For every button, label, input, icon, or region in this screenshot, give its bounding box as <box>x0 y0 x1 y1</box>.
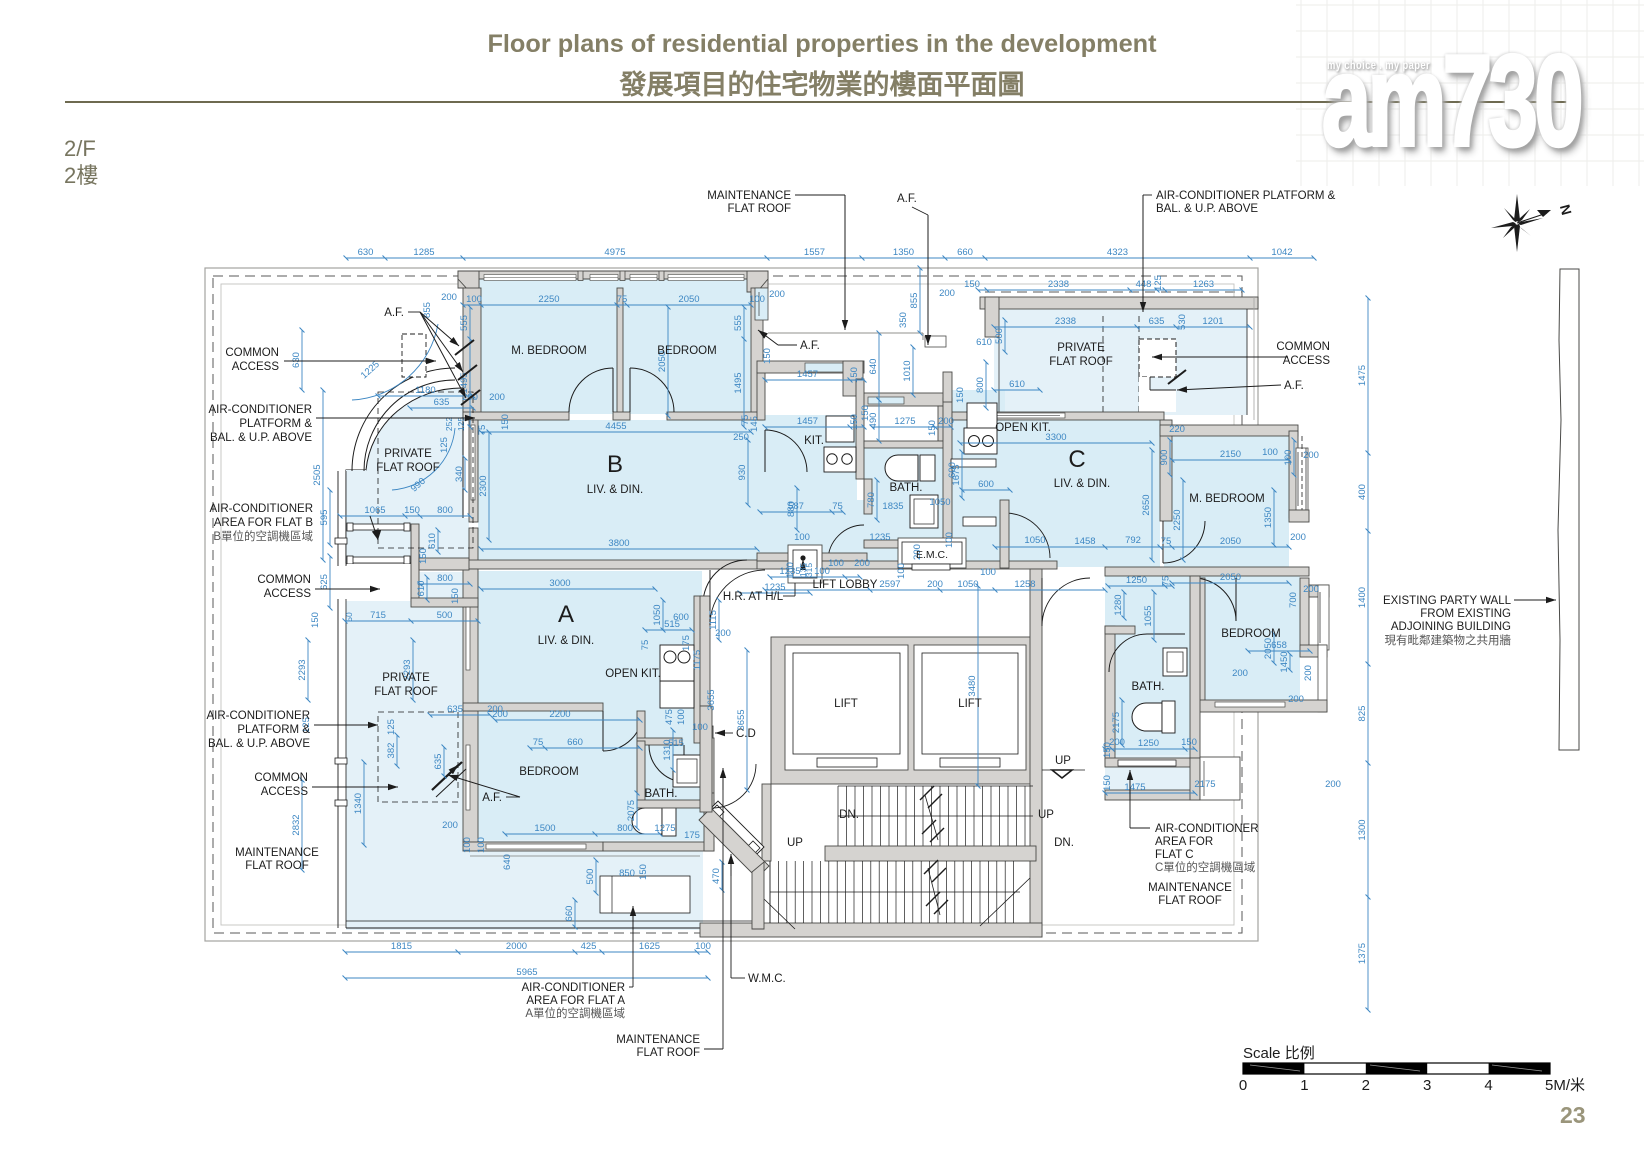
svg-text:75: 75 <box>1161 536 1172 547</box>
svg-text:792: 792 <box>1125 535 1141 546</box>
svg-text:100: 100 <box>828 558 844 569</box>
svg-text:FLAT ROOF: FLAT ROOF <box>728 203 791 215</box>
svg-text:930: 930 <box>737 465 748 481</box>
svg-text:E.M.C.: E.M.C. <box>916 549 948 561</box>
svg-text:FLAT ROOF: FLAT ROOF <box>245 860 308 872</box>
svg-text:150: 150 <box>638 864 649 880</box>
svg-text:200: 200 <box>1232 668 1248 679</box>
svg-text:100: 100 <box>785 562 796 578</box>
svg-text:200: 200 <box>441 292 457 303</box>
svg-text:150: 150 <box>964 279 980 290</box>
svg-text:2832: 2832 <box>291 814 302 835</box>
svg-text:PRIVATE: PRIVATE <box>1057 342 1105 354</box>
svg-text:BATH.: BATH. <box>1131 681 1164 693</box>
svg-text:1235: 1235 <box>869 532 890 543</box>
svg-text:150: 150 <box>450 588 461 604</box>
svg-text:2650: 2650 <box>1141 494 1152 515</box>
svg-text:200: 200 <box>1325 779 1341 790</box>
svg-text:1042: 1042 <box>1271 247 1292 258</box>
svg-text:555: 555 <box>459 315 470 331</box>
svg-text:1250: 1250 <box>1126 575 1147 586</box>
svg-text:C單位的空調機區域: C單位的空調機區域 <box>1155 860 1256 874</box>
svg-text:660: 660 <box>564 906 575 922</box>
svg-text:COMMON: COMMON <box>225 347 279 359</box>
svg-text:4: 4 <box>1484 1077 1492 1094</box>
svg-text:610: 610 <box>1009 379 1025 390</box>
svg-text:2000: 2000 <box>506 941 527 952</box>
svg-text:ACCESS: ACCESS <box>232 361 280 373</box>
svg-text:825: 825 <box>1357 706 1368 722</box>
svg-text:1275: 1275 <box>654 823 675 834</box>
svg-text:A.F.: A.F. <box>384 307 404 319</box>
svg-text:1835: 1835 <box>882 501 903 512</box>
svg-text:610: 610 <box>416 581 427 597</box>
svg-text:FLAT ROOF: FLAT ROOF <box>637 1047 700 1059</box>
svg-text:635: 635 <box>434 397 450 408</box>
svg-text:M. BEDROOM: M. BEDROOM <box>511 345 586 357</box>
svg-text:150: 150 <box>762 348 773 364</box>
svg-text:1300: 1300 <box>1357 819 1368 840</box>
svg-text:1400: 1400 <box>1357 587 1368 608</box>
svg-text:855: 855 <box>909 293 920 309</box>
svg-text:PRIVATE: PRIVATE <box>384 448 432 460</box>
svg-text:800: 800 <box>437 573 453 584</box>
svg-text:50: 50 <box>344 612 354 622</box>
svg-text:150: 150 <box>418 548 429 564</box>
svg-text:3655: 3655 <box>736 709 747 730</box>
svg-text:350: 350 <box>898 312 909 328</box>
svg-text:A.F.: A.F. <box>800 340 820 352</box>
svg-text:ACCESS: ACCESS <box>261 786 309 798</box>
svg-text:LIV. & DIN.: LIV. & DIN. <box>587 484 643 496</box>
svg-text:200: 200 <box>1288 694 1304 705</box>
svg-text:200: 200 <box>1303 450 1319 461</box>
svg-text:658: 658 <box>1271 640 1287 651</box>
svg-text:LIFT: LIFT <box>958 698 982 710</box>
svg-text:FLAT ROOF: FLAT ROOF <box>374 686 437 698</box>
svg-text:150: 150 <box>955 387 966 403</box>
svg-text:AREA FOR FLAT A: AREA FOR FLAT A <box>526 995 625 1007</box>
svg-text:382: 382 <box>386 743 397 759</box>
svg-text:COMMON: COMMON <box>257 574 311 586</box>
svg-text:1263: 1263 <box>1193 279 1214 290</box>
svg-text:610: 610 <box>976 337 992 348</box>
svg-text:2250: 2250 <box>538 294 559 305</box>
svg-text:1050: 1050 <box>929 497 950 508</box>
svg-text:200: 200 <box>927 579 943 590</box>
svg-text:660: 660 <box>957 247 973 258</box>
svg-text:200: 200 <box>487 704 503 715</box>
svg-text:1475: 1475 <box>1357 365 1368 386</box>
svg-text:1175: 1175 <box>692 650 703 670</box>
svg-text:150: 150 <box>404 505 420 516</box>
svg-text:2338: 2338 <box>1048 279 1069 290</box>
svg-text:1050: 1050 <box>957 579 978 590</box>
svg-text:AIR-CONDITIONER: AIR-CONDITIONER <box>207 710 311 722</box>
svg-text:1457: 1457 <box>797 369 818 380</box>
svg-text:3000: 3000 <box>549 578 570 589</box>
svg-text:MAINTENANCE: MAINTENANCE <box>1148 882 1232 894</box>
svg-text:1180: 1180 <box>415 385 435 396</box>
svg-text:ADJOINING BUILDING: ADJOINING BUILDING <box>1391 621 1511 633</box>
svg-text:COMMON: COMMON <box>1276 341 1330 353</box>
svg-text:1258: 1258 <box>1014 579 1035 590</box>
svg-text:1285: 1285 <box>413 247 434 258</box>
svg-text:UP: UP <box>787 837 803 849</box>
svg-text:500: 500 <box>437 610 453 621</box>
svg-text:1450: 1450 <box>1279 651 1290 672</box>
svg-text:ACCESS: ACCESS <box>1283 355 1331 367</box>
svg-text:625: 625 <box>319 574 330 590</box>
svg-text:1495: 1495 <box>733 372 744 393</box>
svg-text:2: 2 <box>1362 1077 1370 1094</box>
svg-text:C: C <box>1068 446 1085 473</box>
svg-text:100: 100 <box>1262 447 1278 458</box>
svg-text:1275: 1275 <box>894 416 915 427</box>
svg-text:340: 340 <box>454 466 465 482</box>
svg-text:1475: 1475 <box>1124 782 1145 793</box>
svg-text:2075: 2075 <box>626 800 637 821</box>
svg-text:UP: UP <box>1038 809 1054 821</box>
svg-text:BAL. & U.P. ABOVE: BAL. & U.P. ABOVE <box>1156 203 1258 215</box>
svg-text:635: 635 <box>433 754 444 770</box>
svg-text:A.F.: A.F. <box>482 792 502 804</box>
svg-text:2597: 2597 <box>879 579 900 590</box>
svg-text:555: 555 <box>733 315 744 331</box>
svg-text:125: 125 <box>386 719 397 735</box>
svg-text:200: 200 <box>715 628 731 639</box>
svg-text:100: 100 <box>476 837 487 853</box>
svg-text:125: 125 <box>1153 275 1164 291</box>
svg-text:1055: 1055 <box>1143 605 1154 626</box>
svg-text:BATH.: BATH. <box>889 482 922 494</box>
svg-text:635: 635 <box>447 704 463 715</box>
svg-text:5965: 5965 <box>516 967 537 978</box>
svg-text:OPEN KIT.: OPEN KIT. <box>605 668 661 680</box>
svg-text:200: 200 <box>854 558 870 569</box>
svg-text:150: 150 <box>500 414 511 430</box>
svg-text:75: 75 <box>477 425 488 436</box>
svg-text:150: 150 <box>860 405 871 421</box>
svg-text:EXISTING PARTY WALL: EXISTING PARTY WALL <box>1383 595 1512 607</box>
svg-text:1457: 1457 <box>797 416 818 427</box>
svg-text:630: 630 <box>358 247 374 258</box>
svg-text:1350: 1350 <box>1263 507 1274 528</box>
svg-text:1340: 1340 <box>353 793 364 814</box>
svg-text:LIFT LOBBY: LIFT LOBBY <box>813 579 878 591</box>
svg-text:75: 75 <box>533 737 544 748</box>
svg-text:UP: UP <box>1055 755 1071 767</box>
svg-text:DN.: DN. <box>839 809 859 821</box>
svg-text:610: 610 <box>427 533 438 549</box>
svg-text:3655: 3655 <box>706 689 717 710</box>
svg-text:75: 75 <box>640 640 651 651</box>
svg-text:AIR-CONDITIONER: AIR-CONDITIONER <box>522 982 626 994</box>
svg-text:1065: 1065 <box>364 505 385 516</box>
svg-text:FLAT ROOF: FLAT ROOF <box>1158 895 1221 907</box>
svg-text:4975: 4975 <box>604 247 625 258</box>
svg-text:630: 630 <box>291 352 302 368</box>
svg-text:MAINTENANCE: MAINTENANCE <box>235 847 319 859</box>
svg-text:B: B <box>607 451 623 478</box>
svg-text:200: 200 <box>1303 665 1314 681</box>
svg-text:500: 500 <box>994 328 1005 344</box>
svg-text:3800: 3800 <box>608 538 629 549</box>
svg-text:150: 150 <box>849 367 860 383</box>
svg-text:2250: 2250 <box>1172 509 1183 530</box>
svg-text:4323: 4323 <box>1107 247 1128 258</box>
svg-text:AREA FOR FLAT B: AREA FOR FLAT B <box>214 517 314 529</box>
svg-text:100: 100 <box>896 563 907 579</box>
svg-text:2175: 2175 <box>1111 712 1122 733</box>
svg-text:1050: 1050 <box>1024 535 1045 546</box>
svg-text:1557: 1557 <box>804 247 825 258</box>
svg-text:BEDROOM: BEDROOM <box>1221 628 1280 640</box>
svg-text:OPEN KIT.: OPEN KIT. <box>995 422 1051 434</box>
svg-text:0: 0 <box>1239 1077 1247 1094</box>
svg-text:800: 800 <box>975 377 986 393</box>
svg-text:200: 200 <box>939 288 955 299</box>
svg-text:200: 200 <box>1109 737 1125 748</box>
svg-text:425: 425 <box>581 941 597 952</box>
svg-text:100: 100 <box>692 722 708 733</box>
svg-text:KIT.: KIT. <box>804 435 824 447</box>
svg-text:75: 75 <box>832 501 843 512</box>
svg-text:150: 150 <box>927 420 938 436</box>
svg-text:100: 100 <box>980 567 996 578</box>
svg-text:75: 75 <box>740 415 751 426</box>
svg-text:2050: 2050 <box>678 294 699 305</box>
svg-text:LIFT: LIFT <box>834 698 858 710</box>
svg-text:200: 200 <box>1290 532 1306 543</box>
svg-text:BATH.: BATH. <box>644 788 677 800</box>
svg-text:125: 125 <box>439 437 450 453</box>
svg-text:600: 600 <box>947 462 958 478</box>
svg-text:475: 475 <box>664 709 675 725</box>
svg-text:200: 200 <box>1303 584 1319 595</box>
svg-text:Scale 比例: Scale 比例 <box>1243 1045 1315 1062</box>
svg-text:100: 100 <box>1283 450 1294 466</box>
svg-text:1350: 1350 <box>893 247 914 258</box>
svg-text:PRIVATE: PRIVATE <box>382 672 430 684</box>
svg-text:B單位的空調機區域: B單位的空調機區域 <box>213 529 313 543</box>
svg-text:100: 100 <box>695 941 711 952</box>
svg-text:2150: 2150 <box>1220 449 1241 460</box>
svg-text:715: 715 <box>370 610 386 621</box>
svg-text:100: 100 <box>794 532 810 543</box>
svg-text:A: A <box>558 601 574 628</box>
svg-text:175: 175 <box>684 830 700 841</box>
svg-text:A.F.: A.F. <box>897 193 917 205</box>
svg-text:850: 850 <box>619 868 635 879</box>
svg-text:800: 800 <box>617 823 633 834</box>
svg-text:BEDROOM: BEDROOM <box>519 766 578 778</box>
svg-text:800: 800 <box>437 505 453 516</box>
svg-text:AIR-CONDITIONER: AIR-CONDITIONER <box>210 503 314 515</box>
svg-text:400: 400 <box>1357 484 1368 500</box>
svg-text:1500: 1500 <box>534 823 555 834</box>
svg-text:2200: 2200 <box>549 709 570 720</box>
svg-text:FLAT ROOF: FLAT ROOF <box>1049 356 1112 368</box>
svg-text:2050: 2050 <box>1220 572 1241 583</box>
svg-text:M. BEDROOM: M. BEDROOM <box>1189 493 1264 505</box>
svg-text:600: 600 <box>978 479 994 490</box>
svg-text:1375: 1375 <box>1357 943 1368 964</box>
svg-text:200: 200 <box>489 392 505 403</box>
svg-text:4455: 4455 <box>605 421 626 432</box>
svg-text:BAL. & U.P. ABOVE: BAL. & U.P. ABOVE <box>210 432 312 444</box>
svg-text:3480: 3480 <box>967 675 978 696</box>
svg-text:W.M.C.: W.M.C. <box>748 973 786 985</box>
svg-text:3: 3 <box>1423 1077 1431 1094</box>
svg-text:900: 900 <box>1159 450 1170 466</box>
svg-text:AIR-CONDITIONER: AIR-CONDITIONER <box>1155 823 1259 835</box>
svg-text:100: 100 <box>466 294 482 305</box>
svg-text:1225: 1225 <box>359 359 382 381</box>
svg-text:LIV. & DIN.: LIV. & DIN. <box>538 635 594 647</box>
svg-text:2338: 2338 <box>1055 316 1076 327</box>
svg-text:A單位的空調機區域: A單位的空調機區域 <box>525 1006 625 1020</box>
svg-text:640: 640 <box>868 359 879 375</box>
svg-text:100: 100 <box>676 709 687 725</box>
svg-text:175: 175 <box>681 635 692 651</box>
svg-text:252: 252 <box>444 417 454 431</box>
svg-text:N: N <box>1557 203 1575 217</box>
svg-text:2505: 2505 <box>312 464 323 485</box>
svg-text:PLATFORM &: PLATFORM & <box>239 418 312 430</box>
svg-text:1: 1 <box>1300 1077 1308 1094</box>
svg-text:1201: 1201 <box>1202 316 1223 327</box>
svg-text:100: 100 <box>462 837 473 853</box>
svg-text:FLAT ROOF: FLAT ROOF <box>376 462 439 474</box>
svg-text:AIR-CONDITIONER: AIR-CONDITIONER <box>209 404 313 416</box>
svg-text:H.R. AT H/L: H.R. AT H/L <box>723 591 784 603</box>
svg-text:1625: 1625 <box>639 941 660 952</box>
svg-text:595: 595 <box>319 510 330 526</box>
svg-text:LIV. & DIN.: LIV. & DIN. <box>1054 478 1110 490</box>
svg-text:FROM EXISTING: FROM EXISTING <box>1420 608 1511 620</box>
svg-text:5M/米: 5M/米 <box>1545 1077 1585 1094</box>
svg-text:1458: 1458 <box>1074 536 1095 547</box>
svg-text:DN.: DN. <box>1054 837 1074 849</box>
svg-text:COMMON: COMMON <box>254 772 308 784</box>
svg-text:530: 530 <box>1177 314 1188 330</box>
svg-text:2300: 2300 <box>478 475 489 496</box>
svg-text:125: 125 <box>456 417 466 431</box>
svg-text:BEDROOM: BEDROOM <box>657 345 716 357</box>
svg-text:515: 515 <box>664 619 680 630</box>
svg-text:100: 100 <box>749 294 765 305</box>
svg-text:75: 75 <box>617 294 628 305</box>
svg-text:640: 640 <box>502 854 513 870</box>
svg-text:2175: 2175 <box>1194 779 1215 790</box>
svg-text:AREA FOR: AREA FOR <box>1155 836 1213 848</box>
svg-text:FLAT C: FLAT C <box>1155 849 1194 861</box>
svg-text:150: 150 <box>849 414 860 430</box>
svg-text:2293: 2293 <box>297 659 308 680</box>
svg-text:現有毗鄰建築物之共用牆: 現有毗鄰建築物之共用牆 <box>1385 633 1512 647</box>
svg-text:AIR-CONDITIONER PLATFORM &: AIR-CONDITIONER PLATFORM & <box>1156 190 1336 202</box>
svg-text:635: 635 <box>1149 316 1165 327</box>
svg-text:250: 250 <box>733 432 749 443</box>
svg-text:780: 780 <box>866 492 877 508</box>
svg-text:150: 150 <box>1102 775 1113 791</box>
svg-text:1815: 1815 <box>391 941 412 952</box>
svg-text:A.F.: A.F. <box>1284 380 1304 392</box>
svg-text:880: 880 <box>786 501 797 517</box>
svg-text:200: 200 <box>442 820 458 831</box>
svg-text:1115: 1115 <box>708 610 719 630</box>
svg-text:515: 515 <box>668 738 684 749</box>
svg-text:315: 315 <box>804 563 814 577</box>
svg-text:1280: 1280 <box>1113 594 1124 615</box>
svg-text:1010: 1010 <box>902 360 913 381</box>
svg-text:200: 200 <box>938 416 954 427</box>
svg-text:100: 100 <box>944 532 955 548</box>
svg-text:1050: 1050 <box>652 604 663 625</box>
svg-text:470: 470 <box>711 868 722 884</box>
svg-text:PLATFORM &: PLATFORM & <box>237 724 310 736</box>
svg-text:MAINTENANCE: MAINTENANCE <box>707 190 791 202</box>
svg-text:MAINTENANCE: MAINTENANCE <box>616 1034 700 1046</box>
svg-text:700: 700 <box>1288 592 1299 608</box>
svg-text:220: 220 <box>1169 424 1185 435</box>
svg-text:BAL. & U.P. ABOVE: BAL. & U.P. ABOVE <box>208 738 310 750</box>
svg-text:1250: 1250 <box>1138 738 1159 749</box>
svg-text:500: 500 <box>585 869 596 885</box>
svg-text:150: 150 <box>1181 737 1197 748</box>
svg-text:150: 150 <box>310 612 321 628</box>
svg-text:ACCESS: ACCESS <box>264 588 312 600</box>
svg-text:2050: 2050 <box>1220 536 1241 547</box>
svg-text:660: 660 <box>567 737 583 748</box>
svg-text:200: 200 <box>769 289 785 300</box>
